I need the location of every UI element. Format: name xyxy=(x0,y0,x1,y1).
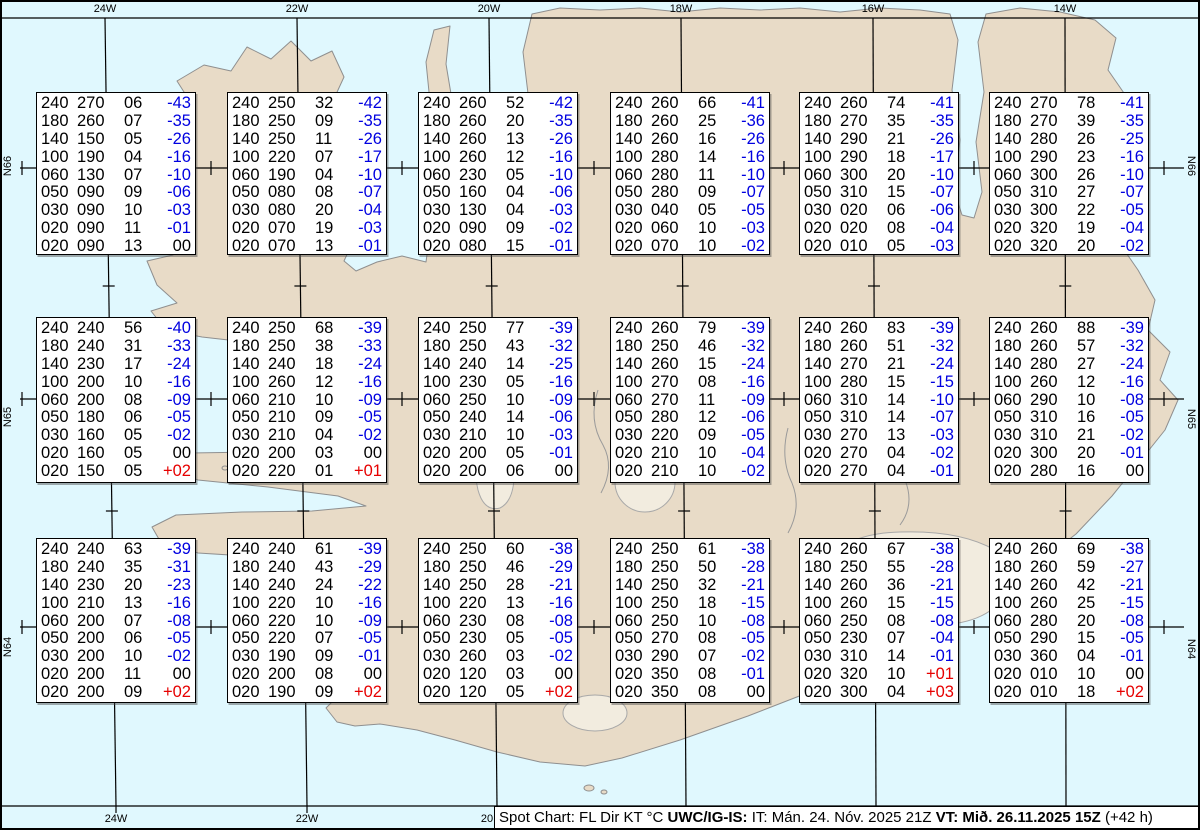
temp-value: -23 xyxy=(162,576,191,594)
fl-value: 020 xyxy=(41,219,77,237)
spot-table-r1c3: 24026052-4218026020-3514026013-261002601… xyxy=(418,92,578,255)
kt-value: 32 xyxy=(315,94,353,112)
kt-value: 68 xyxy=(315,319,353,337)
temp-value: -39 xyxy=(736,319,765,337)
spot-row: 18026007-35 xyxy=(37,112,195,130)
spot-row: 14025032-21 xyxy=(611,576,769,594)
spot-row: 02030004+03 xyxy=(800,683,958,701)
spot-table-r2c3: 24025077-3918025043-3214024014-251002300… xyxy=(418,317,578,483)
footer-segment: IT: Mán. 24. Nóv. 2025 21Z xyxy=(748,809,936,826)
dir-value: 230 xyxy=(840,629,887,647)
temp-value: -01 xyxy=(1115,647,1144,665)
kt-value: 14 xyxy=(506,408,544,426)
spot-row: 03019009-01 xyxy=(228,647,386,665)
spot-row: 14025028-21 xyxy=(419,576,577,594)
spot-table-r2c4: 24026079-3918025046-3214026015-241002700… xyxy=(610,317,770,483)
kt-value: 26 xyxy=(1077,166,1115,184)
dir-value: 160 xyxy=(77,426,124,444)
dir-value: 220 xyxy=(268,612,315,630)
fl-value: 030 xyxy=(232,201,268,219)
fl-value: 240 xyxy=(804,540,840,558)
temp-value: -06 xyxy=(162,183,191,201)
spot-row: 02001018+02 xyxy=(990,683,1148,701)
spot-table-r1c6: 24027078-4118027039-3514028026-251002902… xyxy=(989,92,1149,255)
spot-row: 02001005-03 xyxy=(800,237,958,255)
kt-value: 07 xyxy=(124,166,162,184)
lat-label-left: N64 xyxy=(2,637,14,657)
spot-row: 10027008-16 xyxy=(611,373,769,391)
dir-value: 260 xyxy=(459,130,506,148)
fl-value: 140 xyxy=(423,576,459,594)
spot-row: 18026020-35 xyxy=(419,112,577,130)
spot-row: 24026066-41 xyxy=(611,94,769,112)
fl-value: 180 xyxy=(423,558,459,576)
dir-value: 220 xyxy=(268,629,315,647)
fl-value: 060 xyxy=(41,612,77,630)
fl-value: 180 xyxy=(994,112,1030,130)
temp-value: -26 xyxy=(736,130,765,148)
dir-value: 250 xyxy=(268,112,315,130)
temp-value: 00 xyxy=(544,462,573,480)
temp-value: -17 xyxy=(353,148,382,166)
kt-value: 46 xyxy=(698,337,736,355)
fl-value: 240 xyxy=(804,319,840,337)
temp-value: -16 xyxy=(544,594,573,612)
spot-row: 05028009-07 xyxy=(611,183,769,201)
temp-value: -15 xyxy=(736,594,765,612)
dir-value: 260 xyxy=(651,94,698,112)
spot-row: 03027013-03 xyxy=(800,426,958,444)
spot-row: 0201200300 xyxy=(419,665,577,683)
spot-row: 06020008-09 xyxy=(37,391,195,409)
dir-value: 210 xyxy=(268,391,315,409)
fl-value: 050 xyxy=(994,408,1030,426)
dir-value: 200 xyxy=(268,665,315,683)
spot-row: 18024035-31 xyxy=(37,558,195,576)
dir-value: 250 xyxy=(840,558,887,576)
temp-value: -05 xyxy=(353,408,382,426)
dir-value: 270 xyxy=(840,426,887,444)
temp-value: -10 xyxy=(925,391,954,409)
spot-row: 0203500800 xyxy=(611,683,769,701)
kt-value: 10 xyxy=(124,373,162,391)
dir-value: 290 xyxy=(1030,629,1077,647)
temp-value: -05 xyxy=(544,629,573,647)
dir-value: 200 xyxy=(459,444,506,462)
kt-value: 50 xyxy=(698,558,736,576)
fl-value: 050 xyxy=(423,629,459,647)
fl-value: 140 xyxy=(615,130,651,148)
spot-row: 18025050-28 xyxy=(611,558,769,576)
temp-value: 00 xyxy=(353,444,382,462)
kt-value: 20 xyxy=(1077,612,1115,630)
spot-row: 24027078-41 xyxy=(990,94,1148,112)
spot-row: 14026013-26 xyxy=(419,130,577,148)
kt-value: 09 xyxy=(124,183,162,201)
kt-value: 15 xyxy=(887,183,925,201)
fl-value: 140 xyxy=(41,576,77,594)
fl-value: 030 xyxy=(615,647,651,665)
dir-value: 230 xyxy=(459,373,506,391)
dir-value: 250 xyxy=(840,612,887,630)
dir-value: 090 xyxy=(77,237,124,255)
fl-value: 030 xyxy=(41,647,77,665)
temp-value: -33 xyxy=(353,337,382,355)
lon-label-bottom: 22W xyxy=(296,813,319,825)
dir-value: 270 xyxy=(840,355,887,373)
fl-value: 060 xyxy=(423,612,459,630)
fl-value: 050 xyxy=(615,408,651,426)
fl-value: 100 xyxy=(41,373,77,391)
dir-value: 020 xyxy=(840,219,887,237)
temp-value: -02 xyxy=(1115,237,1144,255)
fl-value: 180 xyxy=(423,112,459,130)
spot-row: 24026083-39 xyxy=(800,319,958,337)
kt-value: 05 xyxy=(124,130,162,148)
spot-row: 10029018-17 xyxy=(800,148,958,166)
kt-value: 10 xyxy=(698,219,736,237)
kt-value: 09 xyxy=(506,219,544,237)
spot-row: 05009009-06 xyxy=(37,183,195,201)
spot-row: 14026036-21 xyxy=(800,576,958,594)
spot-row: 06023008-08 xyxy=(419,612,577,630)
fl-value: 100 xyxy=(232,373,268,391)
fl-value: 020 xyxy=(804,219,840,237)
spot-row: 03031014-01 xyxy=(800,647,958,665)
spot-table-r3c5: 24026067-3818025055-2814026036-211002601… xyxy=(799,538,959,703)
dir-value: 210 xyxy=(459,426,506,444)
dir-value: 260 xyxy=(840,576,887,594)
spot-row: 0202000600 xyxy=(419,462,577,480)
kt-value: 06 xyxy=(506,462,544,480)
dir-value: 190 xyxy=(268,166,315,184)
fl-value: 240 xyxy=(994,319,1030,337)
spot-table-r3c4: 24025061-3818025050-2814025032-211002501… xyxy=(610,538,770,703)
dir-value: 150 xyxy=(77,130,124,148)
fl-value: 050 xyxy=(423,408,459,426)
temp-value: -01 xyxy=(353,647,382,665)
temp-value: -04 xyxy=(353,201,382,219)
temp-value: -03 xyxy=(544,426,573,444)
temp-value: -01 xyxy=(925,647,954,665)
temp-value: +02 xyxy=(1115,683,1144,701)
spot-row: 05031016-05 xyxy=(990,408,1148,426)
fl-value: 060 xyxy=(615,391,651,409)
temp-value: -06 xyxy=(544,183,573,201)
kt-value: 22 xyxy=(1077,201,1115,219)
dir-value: 200 xyxy=(77,391,124,409)
dir-value: 220 xyxy=(268,148,315,166)
fl-value: 180 xyxy=(615,558,651,576)
lon-label-top: 20W xyxy=(478,3,501,15)
dir-value: 360 xyxy=(1030,647,1077,665)
fl-value: 020 xyxy=(615,665,651,683)
dir-value: 150 xyxy=(77,462,124,480)
fl-value: 140 xyxy=(804,355,840,373)
dir-value: 260 xyxy=(840,540,887,558)
temp-value: -05 xyxy=(353,629,382,647)
temp-value: -32 xyxy=(1115,337,1144,355)
kt-value: 07 xyxy=(315,629,353,647)
temp-value: -03 xyxy=(544,201,573,219)
temp-value: -02 xyxy=(736,647,765,665)
kt-value: 04 xyxy=(315,166,353,184)
temp-value: -26 xyxy=(353,130,382,148)
temp-value: -05 xyxy=(736,629,765,647)
spot-row: 05022007-05 xyxy=(228,629,386,647)
spot-row: 02032010+01 xyxy=(800,665,958,683)
dir-value: 280 xyxy=(1030,612,1077,630)
dir-value: 290 xyxy=(840,130,887,148)
fl-value: 060 xyxy=(41,391,77,409)
fl-value: 100 xyxy=(994,148,1030,166)
temp-value: -41 xyxy=(736,94,765,112)
dir-value: 350 xyxy=(651,665,698,683)
fl-value: 180 xyxy=(804,112,840,130)
temp-value: -16 xyxy=(162,373,191,391)
fl-value: 050 xyxy=(994,629,1030,647)
spot-row: 10021013-16 xyxy=(37,594,195,612)
dir-value: 260 xyxy=(268,373,315,391)
kt-value: 67 xyxy=(887,540,925,558)
temp-value: -29 xyxy=(544,558,573,576)
kt-value: 05 xyxy=(506,166,544,184)
dir-value: 320 xyxy=(1030,237,1077,255)
kt-value: 14 xyxy=(887,408,925,426)
kt-value: 13 xyxy=(315,237,353,255)
temp-value: -10 xyxy=(353,166,382,184)
fl-value: 180 xyxy=(994,558,1030,576)
temp-value: -05 xyxy=(162,408,191,426)
dir-value: 270 xyxy=(651,373,698,391)
fl-value: 240 xyxy=(41,94,77,112)
temp-value: -07 xyxy=(925,183,954,201)
fl-value: 020 xyxy=(804,444,840,462)
kt-value: 08 xyxy=(698,683,736,701)
temp-value: -21 xyxy=(736,576,765,594)
kt-value: 35 xyxy=(124,558,162,576)
temp-value: -32 xyxy=(925,337,954,355)
kt-value: 09 xyxy=(315,408,353,426)
temp-value: -35 xyxy=(544,112,573,130)
temp-value: 00 xyxy=(544,665,573,683)
fl-value: 020 xyxy=(232,462,268,480)
spot-row: 06022010-09 xyxy=(228,612,386,630)
fl-value: 140 xyxy=(994,130,1030,148)
fl-value: 050 xyxy=(423,183,459,201)
dir-value: 240 xyxy=(268,576,315,594)
fl-value: 050 xyxy=(232,408,268,426)
temp-value: -05 xyxy=(1115,201,1144,219)
dir-value: 200 xyxy=(77,647,124,665)
temp-value: -03 xyxy=(925,426,954,444)
spot-row: 24026052-42 xyxy=(419,94,577,112)
kt-value: 06 xyxy=(124,408,162,426)
kt-value: 15 xyxy=(506,237,544,255)
spot-row: 02002008-04 xyxy=(800,219,958,237)
spot-row: 18025046-29 xyxy=(419,558,577,576)
fl-value: 060 xyxy=(232,612,268,630)
dir-value: 280 xyxy=(651,183,698,201)
kt-value: 59 xyxy=(1077,558,1115,576)
kt-value: 15 xyxy=(698,355,736,373)
kt-value: 09 xyxy=(698,183,736,201)
lon-label-top: 24W xyxy=(94,3,117,15)
lon-label-top: 16W xyxy=(862,3,885,15)
dir-value: 190 xyxy=(268,647,315,665)
spot-table-r3c1: 24024063-3918024035-3114023020-231002101… xyxy=(36,538,196,703)
kt-value: 16 xyxy=(1077,408,1115,426)
temp-value: -16 xyxy=(544,148,573,166)
kt-value: 18 xyxy=(887,148,925,166)
temp-value: -05 xyxy=(736,426,765,444)
spot-row: 02015005+02 xyxy=(37,462,195,480)
fl-value: 100 xyxy=(41,594,77,612)
fl-value: 180 xyxy=(615,112,651,130)
spot-row: 05024014-06 xyxy=(419,408,577,426)
temp-value: -41 xyxy=(1115,94,1144,112)
temp-value: -08 xyxy=(1115,612,1144,630)
fl-value: 140 xyxy=(232,130,268,148)
fl-value: 180 xyxy=(804,558,840,576)
temp-value: -02 xyxy=(162,647,191,665)
fl-value: 050 xyxy=(994,183,1030,201)
dir-value: 300 xyxy=(840,166,887,184)
spot-row: 06030026-10 xyxy=(990,166,1148,184)
dir-value: 210 xyxy=(651,444,698,462)
kt-value: 08 xyxy=(887,612,925,630)
dir-value: 260 xyxy=(459,112,506,130)
fl-value: 020 xyxy=(232,219,268,237)
dir-value: 310 xyxy=(1030,408,1077,426)
fl-value: 140 xyxy=(804,576,840,594)
temp-value: -21 xyxy=(1115,576,1144,594)
fl-value: 050 xyxy=(804,629,840,647)
dir-value: 020 xyxy=(840,201,887,219)
fl-value: 020 xyxy=(232,237,268,255)
fl-value: 050 xyxy=(41,408,77,426)
temp-value: 00 xyxy=(162,665,191,683)
spot-row: 18026059-27 xyxy=(990,558,1148,576)
dir-value: 310 xyxy=(1030,426,1077,444)
kt-value: 11 xyxy=(315,130,353,148)
fl-value: 140 xyxy=(804,130,840,148)
spot-row: 02027004-01 xyxy=(800,462,958,480)
fl-value: 030 xyxy=(423,647,459,665)
spot-row: 03026003-02 xyxy=(419,647,577,665)
dir-value: 080 xyxy=(459,237,506,255)
fl-value: 140 xyxy=(232,576,268,594)
dir-value: 230 xyxy=(459,629,506,647)
kt-value: 66 xyxy=(698,94,736,112)
kt-value: 20 xyxy=(1077,237,1115,255)
kt-value: 26 xyxy=(1077,130,1115,148)
dir-value: 230 xyxy=(77,355,124,373)
dir-value: 260 xyxy=(459,647,506,665)
kt-value: 13 xyxy=(506,594,544,612)
spot-row: 14026042-21 xyxy=(990,576,1148,594)
fl-value: 020 xyxy=(41,462,77,480)
kt-value: 23 xyxy=(1077,148,1115,166)
dir-value: 310 xyxy=(840,408,887,426)
kt-value: 16 xyxy=(1077,462,1115,480)
temp-value: -24 xyxy=(736,355,765,373)
spot-row: 0202801600 xyxy=(990,462,1148,480)
temp-value: -05 xyxy=(736,201,765,219)
dir-value: 070 xyxy=(651,237,698,255)
kt-value: 12 xyxy=(698,408,736,426)
temp-value: -16 xyxy=(544,373,573,391)
footer-segment: UWC/IG-IS: xyxy=(668,809,748,826)
kt-value: 05 xyxy=(506,683,544,701)
kt-value: 12 xyxy=(1077,373,1115,391)
temp-value: -26 xyxy=(162,130,191,148)
dir-value: 210 xyxy=(77,594,124,612)
spot-row: 24026074-41 xyxy=(800,94,958,112)
spot-row: 18024031-33 xyxy=(37,337,195,355)
kt-value: 18 xyxy=(1077,683,1115,701)
dir-value: 120 xyxy=(459,683,506,701)
dir-value: 220 xyxy=(459,594,506,612)
dir-value: 060 xyxy=(651,219,698,237)
spot-row: 05029015-05 xyxy=(990,629,1148,647)
spot-table-r2c2: 24025068-3918025038-3314024018-241002601… xyxy=(227,317,387,483)
spot-row: 14029021-26 xyxy=(800,130,958,148)
spot-row: 24024056-40 xyxy=(37,319,195,337)
spot-row: 02019009+02 xyxy=(228,683,386,701)
temp-value: -28 xyxy=(736,558,765,576)
dir-value: 080 xyxy=(268,183,315,201)
spot-row: 14026015-24 xyxy=(611,355,769,373)
fl-value: 240 xyxy=(615,94,651,112)
dir-value: 240 xyxy=(77,540,124,558)
dir-value: 250 xyxy=(459,391,506,409)
dir-value: 230 xyxy=(459,166,506,184)
temp-value: -06 xyxy=(925,201,954,219)
temp-value: -15 xyxy=(925,373,954,391)
temp-value: +01 xyxy=(353,462,382,480)
temp-value: -09 xyxy=(162,391,191,409)
temp-value: -22 xyxy=(353,576,382,594)
spot-row: 02009009-02 xyxy=(419,219,577,237)
temp-value: -07 xyxy=(925,408,954,426)
temp-value: -38 xyxy=(544,540,573,558)
kt-value: 25 xyxy=(1077,594,1115,612)
kt-value: 19 xyxy=(1077,219,1115,237)
spot-row: 03016005-02 xyxy=(37,426,195,444)
kt-value: 20 xyxy=(1077,444,1115,462)
temp-value: +02 xyxy=(162,462,191,480)
fl-value: 140 xyxy=(615,576,651,594)
fl-value: 100 xyxy=(41,148,77,166)
fl-value: 060 xyxy=(994,166,1030,184)
lon-label-bottom: 20 xyxy=(481,813,493,825)
temp-value: -07 xyxy=(1115,183,1144,201)
spot-row: 24024061-39 xyxy=(228,540,386,558)
spot-row: 10026012-16 xyxy=(990,373,1148,391)
temp-value: -02 xyxy=(162,426,191,444)
spot-row: 10028015-15 xyxy=(800,373,958,391)
kt-value: 43 xyxy=(506,337,544,355)
fl-value: 240 xyxy=(41,540,77,558)
fl-value: 030 xyxy=(423,426,459,444)
kt-value: 08 xyxy=(698,629,736,647)
kt-value: 21 xyxy=(1077,426,1115,444)
spot-row: 02021010-02 xyxy=(611,462,769,480)
fl-value: 030 xyxy=(804,426,840,444)
spot-row: 24026079-39 xyxy=(611,319,769,337)
fl-value: 180 xyxy=(994,337,1030,355)
